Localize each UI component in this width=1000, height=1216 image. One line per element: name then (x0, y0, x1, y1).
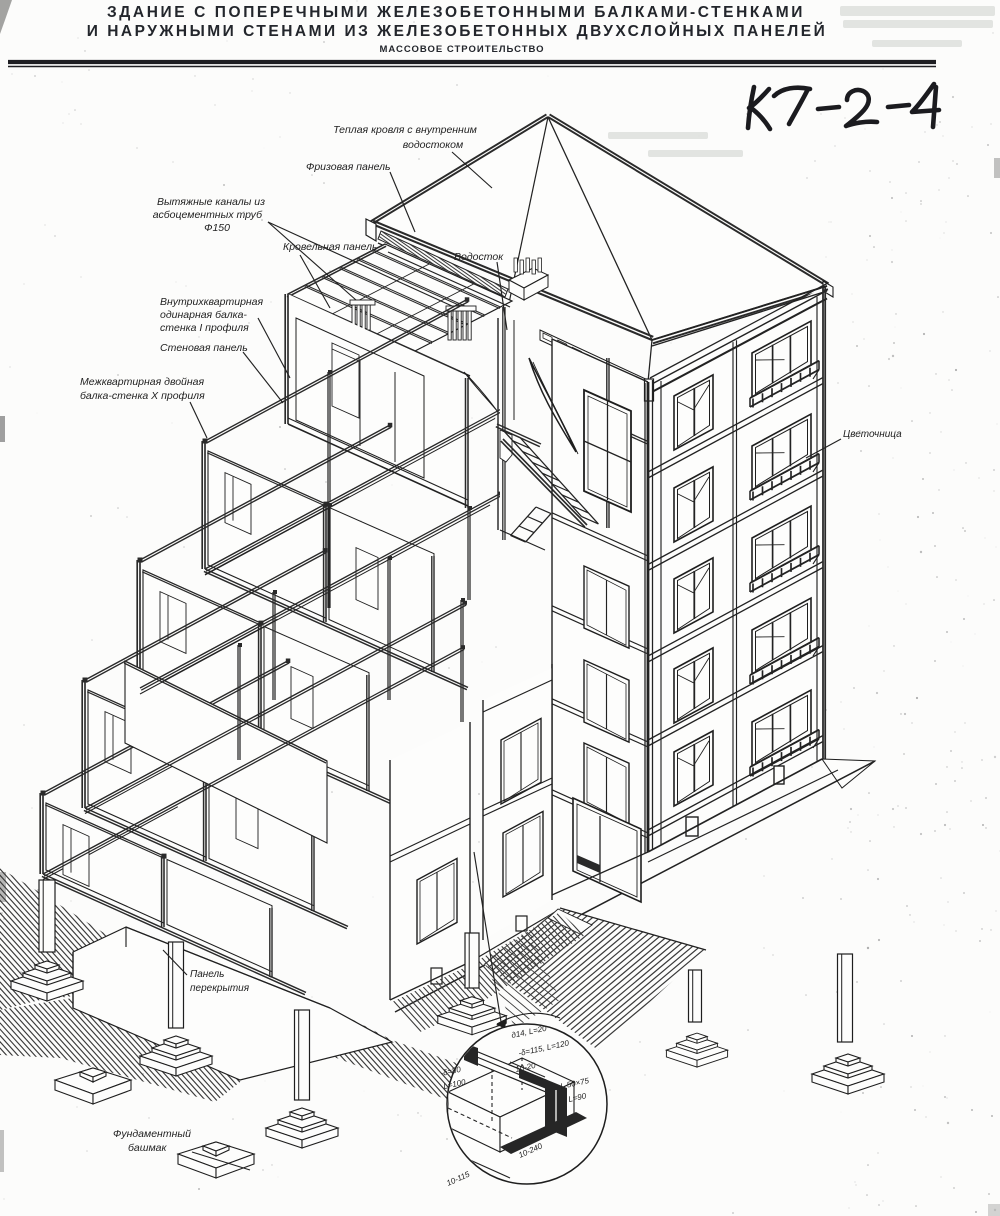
svg-text:Внутрихквартирная: Внутрихквартирная (160, 296, 264, 308)
svg-text:Панель: Панель (190, 969, 224, 980)
svg-text:Стеновая панель: Стеновая панель (160, 342, 248, 354)
svg-text:стенка I профиля: стенка I профиля (160, 322, 249, 334)
svg-text:башмак: башмак (128, 1142, 167, 1154)
svg-text:водостоком: водостоком (403, 139, 463, 151)
svg-text:И НАРУЖНЫМИ СТЕНАМИ ИЗ ЖЕЛ: И НАРУЖНЫМИ СТЕНАМИ ИЗ ЖЕЛЕЗОБЕТОННЫХ ДВ… (87, 22, 827, 40)
svg-text:Цветочница: Цветочница (843, 429, 902, 440)
svg-text:Фризовая панель: Фризовая панель (306, 161, 391, 173)
svg-text:Фундаментный: Фундаментный (113, 1128, 191, 1140)
svg-text:Теплая кровля с внутренним: Теплая кровля с внутренним (333, 124, 477, 136)
svg-text:перекрытия: перекрытия (190, 983, 250, 994)
svg-text:МАССОВОЕ СТРОИТЕЛЬСТВО: МАССОВОЕ СТРОИТЕЛЬСТВО (379, 44, 544, 55)
svg-text:балка-стенка Х профиля: балка-стенка Х профиля (80, 390, 205, 402)
svg-text:асбоцементных труб: асбоцементных труб (153, 209, 263, 221)
svg-text:Межквартирная двойная: Межквартирная двойная (80, 376, 204, 388)
svg-text:Водосток: Водосток (454, 251, 504, 263)
svg-text:ЗДАНИЕ С ПОПЕРЕЧНЫМИ ЖЕЛЕЗО: ЗДАНИЕ С ПОПЕРЕЧНЫМИ ЖЕЛЕЗОБЕТОННЫМИ БАЛ… (107, 4, 805, 21)
svg-text:Вытяжные каналы из: Вытяжные каналы из (157, 196, 265, 208)
svg-text:Ф150: Ф150 (204, 222, 230, 234)
svg-text:Кровельная панель: Кровельная панель (283, 241, 378, 253)
svg-text:одинарная балка-: одинарная балка- (160, 309, 247, 321)
